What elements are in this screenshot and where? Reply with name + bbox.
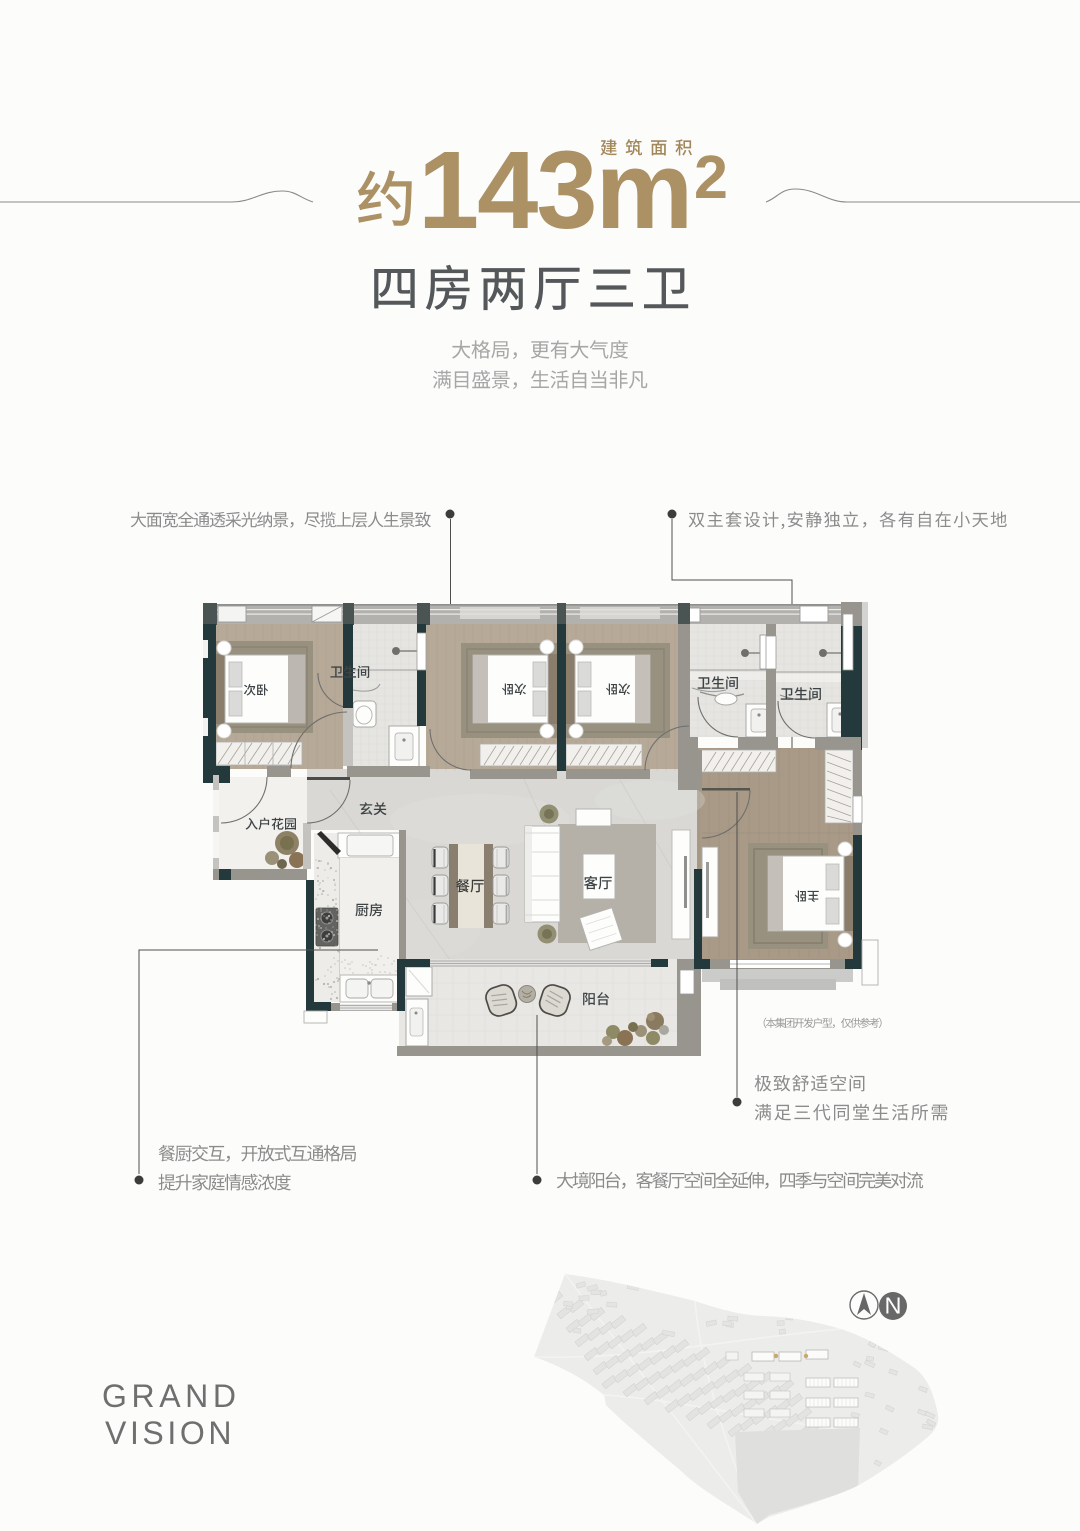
svg-text:143m: 143m — [418, 129, 691, 252]
svg-text:2: 2 — [694, 143, 728, 211]
svg-text:N: N — [885, 1293, 902, 1319]
svg-text:VISION: VISION — [105, 1415, 235, 1451]
svg-text:GRAND: GRAND — [102, 1378, 241, 1414]
